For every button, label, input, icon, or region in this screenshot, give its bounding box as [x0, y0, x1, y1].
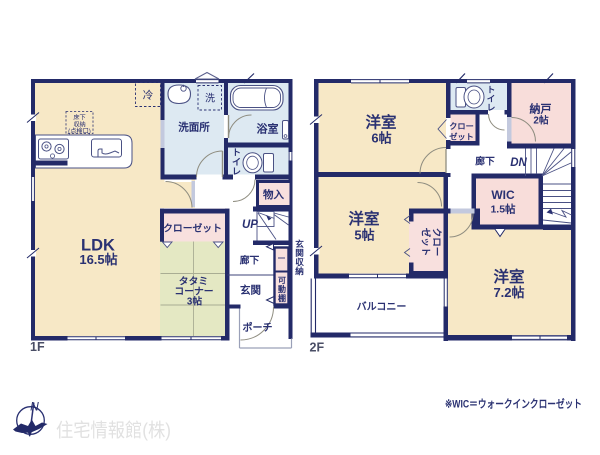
- svg-text:ポーチ: ポーチ: [243, 321, 273, 334]
- svg-text:玄関収納: 玄関収納: [295, 238, 304, 276]
- svg-text:16.5帖: 16.5帖: [79, 252, 117, 267]
- svg-text:可動棚: 可動棚: [278, 276, 286, 303]
- svg-text:クロー: クロー: [449, 121, 474, 131]
- svg-text:洋室: 洋室: [493, 267, 524, 286]
- svg-text:6帖: 6帖: [371, 131, 391, 146]
- svg-text:トイレ: トイレ: [487, 85, 496, 113]
- svg-text:洋室: 洋室: [365, 113, 396, 132]
- svg-text:DN: DN: [510, 157, 527, 169]
- svg-text:ゼット: ゼット: [449, 132, 474, 142]
- svg-text:クロー: クロー: [431, 228, 442, 257]
- svg-text:バルコニー: バルコニー: [357, 301, 407, 313]
- svg-text:1.5帖: 1.5帖: [490, 203, 516, 216]
- svg-text:トイレ: トイレ: [232, 148, 241, 177]
- svg-text:2F: 2F: [310, 341, 325, 355]
- svg-text:廊下: 廊下: [475, 155, 495, 168]
- svg-text:洗: 洗: [205, 93, 215, 105]
- svg-text:洗面所: 洗面所: [178, 121, 210, 134]
- svg-text:UP: UP: [242, 219, 258, 231]
- svg-text:1F: 1F: [30, 340, 45, 354]
- svg-text:床下: 床下: [73, 114, 85, 122]
- svg-text:7.2帖: 7.2帖: [493, 285, 524, 300]
- svg-text:冷: 冷: [143, 89, 154, 102]
- svg-text:玄関: 玄関: [240, 284, 261, 297]
- svg-text:WIC: WIC: [491, 188, 515, 202]
- svg-text:納戸: 納戸: [530, 102, 552, 116]
- svg-text:※WIC＝ウォークインクローゼット: ※WIC＝ウォークインクローゼット: [445, 397, 582, 411]
- svg-text:廊下: 廊下: [240, 254, 260, 267]
- svg-text:住宅情報館(株): 住宅情報館(株): [56, 420, 171, 442]
- svg-text:浴室: 浴室: [257, 122, 279, 136]
- svg-text:物入: 物入: [263, 188, 284, 201]
- svg-text:クローゼット: クローゼット: [163, 222, 222, 235]
- svg-text:2帖: 2帖: [533, 114, 548, 127]
- svg-text:洋室: 洋室: [348, 209, 379, 228]
- svg-text:5帖: 5帖: [354, 228, 374, 243]
- svg-text:(点検口): (点検口): [68, 127, 91, 135]
- svg-text:3帖: 3帖: [187, 295, 202, 308]
- svg-text:ゼット: ゼット: [420, 228, 432, 257]
- svg-text:N: N: [30, 400, 39, 414]
